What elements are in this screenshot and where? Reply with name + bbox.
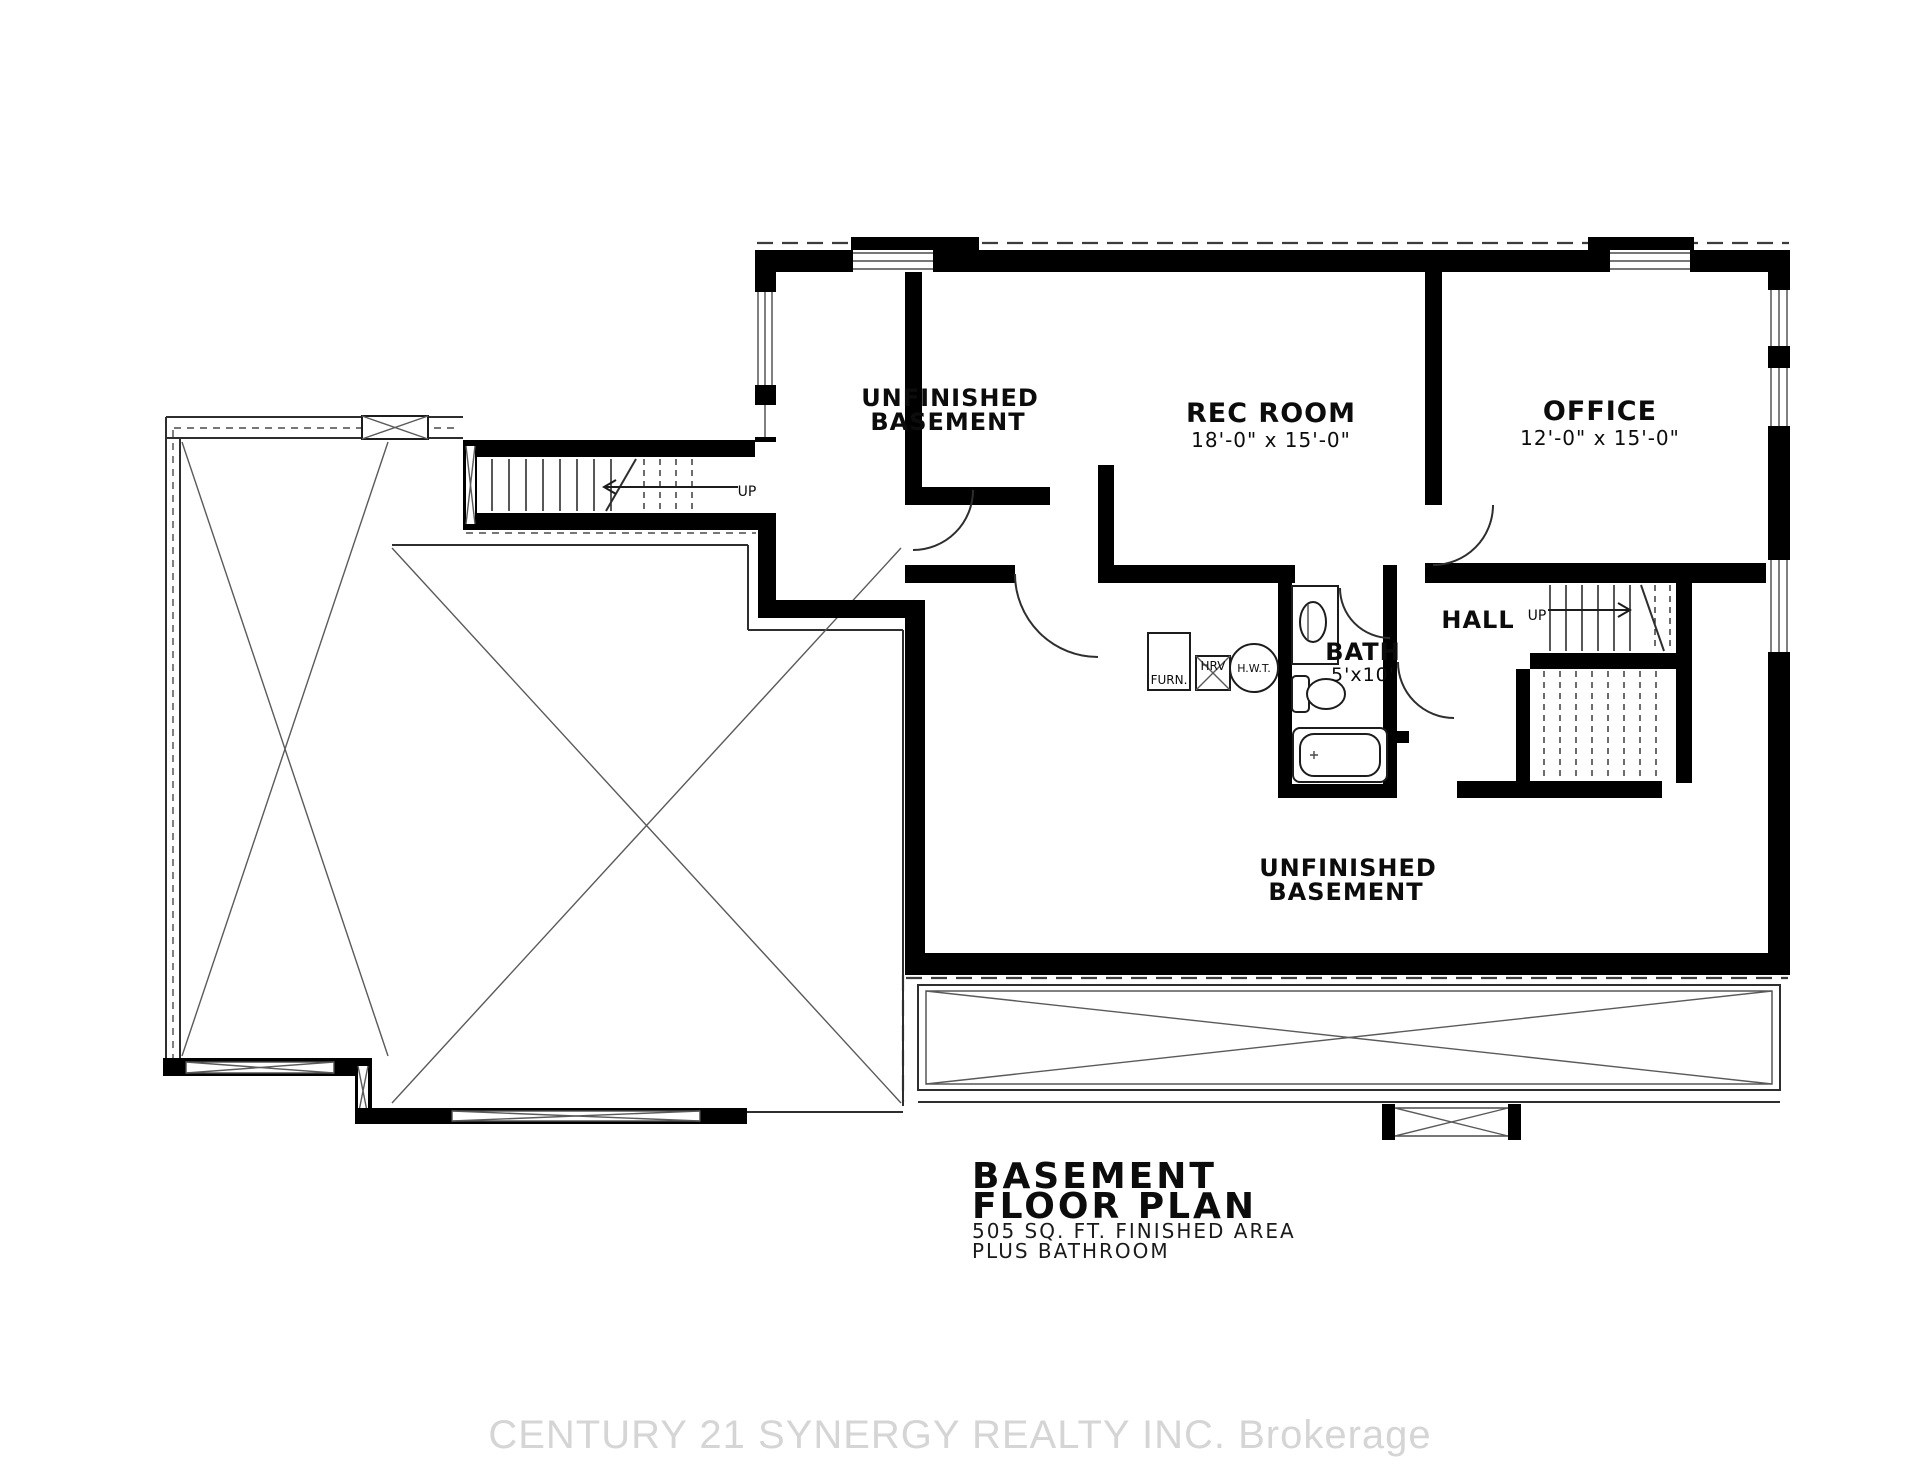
unexcavated-x-main bbox=[392, 533, 903, 1106]
unfinished-basement-upper-label-line2: BASEMENT bbox=[870, 408, 1025, 436]
hot-water-tank: H.W.T. bbox=[1230, 644, 1278, 692]
floor-plan-page: UP bbox=[0, 0, 1920, 1484]
window-top-2 bbox=[1610, 250, 1690, 272]
window-right-1 bbox=[1768, 290, 1790, 346]
window-left-2 bbox=[755, 405, 776, 437]
garage-door-walls bbox=[163, 1058, 903, 1124]
furnace: FURN. bbox=[1148, 633, 1190, 690]
window-left-1 bbox=[755, 292, 776, 385]
brokerage-watermark: CENTURY 21 SYNERGY REALTY INC. Brokerage bbox=[488, 1413, 1431, 1457]
window-right-3 bbox=[1768, 560, 1790, 652]
deck-post-tab bbox=[1588, 237, 1694, 250]
title-line4: PLUS BATHROOM bbox=[972, 1239, 1170, 1263]
window-top-1 bbox=[853, 250, 933, 272]
mechanical-equipment: FURN. HRV H.W.T. bbox=[1148, 633, 1278, 692]
deck-post-tab bbox=[851, 237, 979, 250]
stair-hall: UP bbox=[1528, 585, 1670, 779]
hrv-label: HRV bbox=[1201, 659, 1227, 673]
stair-hall-lower-treads bbox=[1544, 671, 1656, 779]
deck-strip bbox=[918, 985, 1780, 1102]
rec-room-dims: 18'-0" x 15'-0" bbox=[1191, 428, 1351, 452]
bath-door-arc bbox=[1340, 588, 1390, 638]
furnace-label: FURN. bbox=[1151, 673, 1188, 687]
bath-label: BATH bbox=[1325, 638, 1400, 666]
mech-area-door-arc bbox=[1015, 574, 1098, 657]
title-block: BASEMENT FLOOR PLAN 505 SQ. FT. FINISHED… bbox=[972, 1156, 1296, 1263]
hot-water-tank-label: H.W.T. bbox=[1237, 662, 1271, 675]
hall-door-arc bbox=[1398, 662, 1454, 718]
unexcavated-x-left bbox=[182, 442, 388, 1056]
stair-hall-up-arrow bbox=[1548, 603, 1630, 617]
stair-left-up-label: UP bbox=[738, 484, 757, 500]
room-labels: UNFINISHED BASEMENT REC ROOM 18'-0" x 15… bbox=[861, 384, 1680, 906]
hall-label: HALL bbox=[1441, 606, 1514, 634]
unfinished-basement-lower-label-line2: BASEMENT bbox=[1268, 878, 1423, 906]
floor-plan-drawing: UP bbox=[0, 0, 1920, 1484]
office-dims: 12'-0" x 15'-0" bbox=[1520, 426, 1680, 450]
stair-hall-up-label: UP bbox=[1528, 608, 1547, 624]
office-label: OFFICE bbox=[1543, 396, 1657, 427]
stair-left-treads bbox=[492, 459, 692, 511]
office-door-arc bbox=[1433, 505, 1493, 565]
interior-walls bbox=[905, 272, 1766, 798]
stair-hall-treads bbox=[1550, 585, 1670, 651]
deck-stoop bbox=[1382, 1104, 1521, 1140]
window-right-2 bbox=[1768, 368, 1790, 426]
stair-left-up-arrow bbox=[604, 480, 738, 494]
hrv-unit: HRV bbox=[1196, 656, 1230, 690]
stair-left: UP bbox=[463, 440, 776, 530]
rec-room-label: REC ROOM bbox=[1186, 398, 1356, 429]
bathtub bbox=[1293, 728, 1387, 782]
bath-dims: 5'x10' bbox=[1331, 664, 1395, 686]
garage-area-boundary bbox=[166, 416, 463, 1072]
